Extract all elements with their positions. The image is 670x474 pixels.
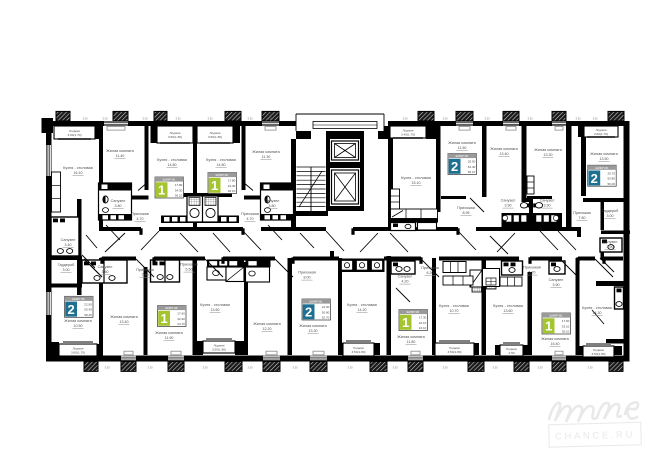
svg-text:3.30: 3.30	[442, 116, 448, 120]
svg-text:Жилая комната: Жилая комната	[155, 331, 183, 335]
svg-text:ШИФР КВ.: ШИФР КВ.	[72, 297, 85, 301]
svg-text:14.80: 14.80	[168, 163, 177, 167]
svg-text:CHANCE.RU: CHANCE.RU	[555, 429, 635, 442]
svg-text:52.70: 52.70	[322, 316, 330, 320]
svg-text:7.40: 7.40	[142, 273, 149, 277]
svg-text:11.80: 11.80	[407, 340, 416, 344]
svg-text:33.10: 33.10	[562, 324, 570, 328]
svg-text:Жилая комната: Жилая комната	[252, 150, 280, 154]
svg-text:Кухня - столовая: Кухня - столовая	[347, 303, 377, 307]
svg-text:3.50(1.80): 3.50(1.80)	[208, 135, 222, 139]
svg-text:11.40: 11.40	[116, 154, 125, 158]
svg-text:3.30: 3.30	[175, 116, 181, 120]
svg-text:Кухня - столовая: Кухня - столовая	[401, 176, 431, 180]
svg-text:11.30: 11.30	[262, 155, 271, 159]
svg-text:3.30: 3.30	[82, 116, 88, 120]
svg-text:13.40: 13.40	[500, 152, 509, 156]
svg-text:3.30: 3.30	[102, 116, 108, 120]
svg-text:3.50(1.80): 3.50(1.80)	[591, 352, 605, 356]
svg-text:Санузел: Санузел	[603, 240, 618, 244]
svg-text:2: 2	[305, 305, 312, 320]
svg-text:3.30: 3.30	[347, 366, 353, 370]
svg-text:1: 1	[158, 183, 165, 198]
svg-text:24.30: 24.30	[322, 305, 330, 309]
svg-text:1: 1	[160, 311, 167, 326]
svg-text:Прихожая: Прихожая	[241, 212, 259, 216]
svg-text:3.30: 3.30	[537, 366, 543, 370]
svg-text:3.50(1.80): 3.50(1.80)	[168, 135, 182, 139]
svg-text:Санузел: Санузел	[501, 199, 516, 203]
svg-text:1: 1	[545, 319, 552, 334]
svg-text:Прихожая: Прихожая	[298, 271, 316, 275]
svg-text:3.40(1.70): 3.40(1.70)	[401, 132, 415, 136]
svg-text:32.10: 32.10	[419, 321, 427, 325]
svg-text:3.60(1.70): 3.60(1.70)	[67, 133, 81, 137]
svg-text:10.50: 10.50	[74, 324, 83, 328]
svg-text:ШИФР КВ.: ШИФР КВ.	[165, 306, 178, 310]
svg-text:Жилая комната: Жилая комната	[534, 148, 562, 152]
svg-text:3.60: 3.60	[102, 270, 109, 274]
svg-text:Кухня - столовая: Кухня - столовая	[582, 306, 612, 310]
svg-text:ШИФР КВ.: ШИФР КВ.	[310, 300, 323, 304]
svg-text:Санузел: Санузел	[265, 199, 280, 203]
svg-text:53.80: 53.80	[607, 177, 615, 181]
svg-text:3.30: 3.30	[142, 116, 148, 120]
svg-text:Кухня - столовая: Кухня - столовая	[493, 304, 523, 308]
svg-text:36.10: 36.10	[228, 189, 236, 193]
svg-text:Жилая комната: Жилая комната	[397, 335, 425, 339]
svg-text:Гардероб: Гардероб	[602, 209, 620, 213]
svg-text:3.90: 3.90	[544, 204, 551, 208]
svg-text:25.50: 25.50	[468, 160, 476, 164]
svg-text:11.50: 11.50	[458, 146, 467, 150]
svg-text:3.90: 3.90	[505, 204, 512, 208]
svg-text:3.30: 3.30	[587, 366, 593, 370]
svg-text:3.30: 3.30	[442, 366, 448, 370]
svg-text:3.30: 3.30	[104, 366, 110, 370]
svg-text:Жилая комната: Жилая комната	[106, 149, 134, 153]
svg-text:Жилая комната: Жилая комната	[490, 147, 518, 151]
svg-text:ШИФР КВ.: ШИФР КВ.	[456, 154, 469, 158]
svg-text:8.00: 8.00	[304, 276, 311, 280]
svg-text:Прихожая: Прихожая	[131, 212, 149, 216]
svg-text:Кухня - столовая: Кухня - столовая	[206, 158, 236, 162]
svg-text:Санузел: Санузел	[549, 278, 564, 282]
svg-text:Гардероб: Гардероб	[58, 263, 76, 267]
svg-text:1: 1	[402, 315, 409, 330]
svg-text:35.10: 35.10	[562, 330, 570, 334]
svg-text:Прихожая: Прихожая	[136, 268, 154, 272]
svg-text:17.60: 17.60	[177, 312, 185, 316]
svg-text:1: 1	[211, 178, 218, 193]
svg-text:3.80: 3.80	[115, 204, 122, 208]
svg-text:11.90: 11.90	[165, 336, 174, 340]
svg-text:Жилая комната: Жилая комната	[448, 141, 476, 145]
svg-text:Жилая комната: Жилая комната	[590, 152, 618, 156]
svg-text:17.80: 17.80	[175, 183, 183, 187]
svg-text:3.90: 3.90	[553, 283, 560, 287]
svg-text:13.50: 13.50	[600, 157, 609, 161]
svg-text:3.40: 3.40	[65, 243, 72, 247]
svg-text:34.10: 34.10	[419, 326, 427, 330]
svg-text:7.80: 7.80	[579, 216, 586, 220]
svg-text:3.30: 3.30	[247, 116, 253, 120]
svg-text:Жилая комната: Жилая комната	[299, 324, 327, 328]
svg-text:3.30: 3.30	[247, 366, 253, 370]
svg-text:ШИФР КВ.: ШИФР КВ.	[216, 173, 229, 177]
svg-text:5.50: 5.50	[186, 268, 193, 272]
svg-text:3.50(1.80): 3.50(1.80)	[351, 350, 365, 354]
svg-text:2: 2	[67, 302, 74, 317]
svg-text:12.20: 12.20	[263, 327, 272, 331]
svg-text:3.30: 3.30	[575, 116, 581, 120]
svg-text:32.90: 32.90	[177, 317, 185, 321]
svg-text:3.30: 3.30	[484, 116, 490, 120]
svg-text:3.30: 3.30	[392, 366, 398, 370]
svg-text:4.70: 4.70	[247, 217, 254, 221]
svg-text:3.50(1.80): 3.50(1.80)	[212, 347, 226, 351]
svg-text:17.60: 17.60	[562, 319, 570, 323]
svg-text:25.70: 25.70	[607, 171, 615, 175]
svg-text:ШИФР КВ.: ШИФР КВ.	[595, 166, 608, 170]
svg-text:10.70: 10.70	[450, 309, 459, 313]
svg-text:8.95: 8.95	[463, 211, 470, 215]
svg-text:Прихожая: Прихожая	[523, 266, 541, 270]
svg-text:34.30: 34.30	[175, 188, 183, 192]
svg-text:ШИФР КВ.: ШИФР КВ.	[163, 178, 176, 182]
svg-text:17.80: 17.80	[228, 179, 236, 183]
svg-text:3.30: 3.30	[207, 116, 213, 120]
svg-text:3.00: 3.00	[63, 268, 70, 272]
svg-text:13.40: 13.40	[120, 320, 129, 324]
svg-text:14.80: 14.80	[217, 163, 226, 167]
svg-text:34.30: 34.30	[228, 184, 236, 188]
svg-text:3.30: 3.30	[292, 366, 298, 370]
svg-text:58.40: 58.40	[84, 313, 92, 317]
svg-text:4.70: 4.70	[137, 217, 144, 221]
svg-text:3.30: 3.30	[147, 366, 153, 370]
svg-text:6.20: 6.20	[427, 271, 434, 275]
svg-text:Кухня - столовая: Кухня - столовая	[439, 304, 469, 308]
svg-text:14.20: 14.20	[358, 308, 367, 312]
svg-text:Кухня - столовая: Кухня - столовая	[200, 303, 230, 307]
svg-text:3.30: 3.30	[527, 116, 533, 120]
svg-text:Санузел: Санузел	[398, 275, 413, 279]
svg-text:22.90: 22.90	[84, 303, 92, 307]
svg-text:Прихожая: Прихожая	[573, 211, 591, 215]
svg-text:ШИФР КВ.: ШИФР КВ.	[550, 314, 563, 318]
svg-text:Жилая комната: Жилая комната	[110, 315, 138, 319]
svg-text:Прихожая: Прихожая	[421, 266, 439, 270]
svg-text:Кухня - столовая: Кухня - столовая	[157, 158, 187, 162]
svg-text:54.40: 54.40	[468, 165, 476, 169]
svg-text:4.20: 4.20	[402, 280, 409, 284]
svg-text:Санузел: Санузел	[111, 199, 126, 203]
svg-text:2.50: 2.50	[508, 351, 514, 355]
svg-text:13.30: 13.30	[309, 329, 318, 333]
svg-text:Прихожая: Прихожая	[180, 263, 198, 267]
svg-text:3.30: 3.30	[592, 116, 598, 120]
svg-text:3.80: 3.80	[269, 204, 276, 208]
svg-text:Санузел: Санузел	[61, 238, 76, 242]
svg-text:3.60(1.70): 3.60(1.70)	[594, 132, 608, 136]
svg-text:34.70: 34.70	[177, 322, 185, 326]
svg-text:15.40: 15.40	[551, 342, 560, 346]
svg-text:2: 2	[591, 171, 598, 186]
svg-text:5.20: 5.20	[529, 271, 536, 275]
svg-text:13.60: 13.60	[211, 308, 220, 312]
svg-text:50.80: 50.80	[322, 310, 330, 314]
svg-text:Санузел: Санузел	[98, 265, 113, 269]
svg-text:Жилая комната: Жилая комната	[541, 337, 569, 341]
svg-text:56.10: 56.10	[468, 170, 476, 174]
svg-text:56.00: 56.00	[607, 182, 615, 186]
svg-text:3.00: 3.00	[607, 214, 614, 218]
svg-text:16.10: 16.10	[74, 171, 83, 175]
svg-text:36.10: 36.10	[175, 194, 183, 198]
svg-text:3.30: 3.30	[492, 366, 498, 370]
svg-text:14.30: 14.30	[593, 311, 602, 315]
svg-text:13.30: 13.30	[544, 153, 553, 157]
svg-text:17.30: 17.30	[419, 316, 427, 320]
svg-text:3.30: 3.30	[267, 116, 273, 120]
svg-text:13.60: 13.60	[504, 309, 513, 313]
svg-text:3.90: 3.90	[607, 245, 614, 249]
svg-text:3.30: 3.30	[402, 116, 408, 120]
svg-text:Кухня - столовая: Кухня - столовая	[63, 166, 93, 170]
svg-text:Жилая комната: Жилая комната	[64, 319, 92, 323]
svg-text:2: 2	[451, 159, 458, 174]
svg-text:55.40: 55.40	[84, 308, 92, 312]
svg-text:Жилая комната: Жилая комната	[253, 322, 281, 326]
svg-text:3.30: 3.30	[202, 366, 208, 370]
svg-text:ШИФР КВ.: ШИФР КВ.	[407, 310, 420, 314]
svg-text:3.60(1.70): 3.60(1.70)	[71, 350, 85, 354]
svg-text:Санузел: Санузел	[540, 199, 555, 203]
svg-text:3.50(1.80): 3.50(1.80)	[447, 350, 461, 354]
svg-text:Прихожая: Прихожая	[457, 206, 475, 210]
svg-text:15.10: 15.10	[412, 181, 421, 185]
